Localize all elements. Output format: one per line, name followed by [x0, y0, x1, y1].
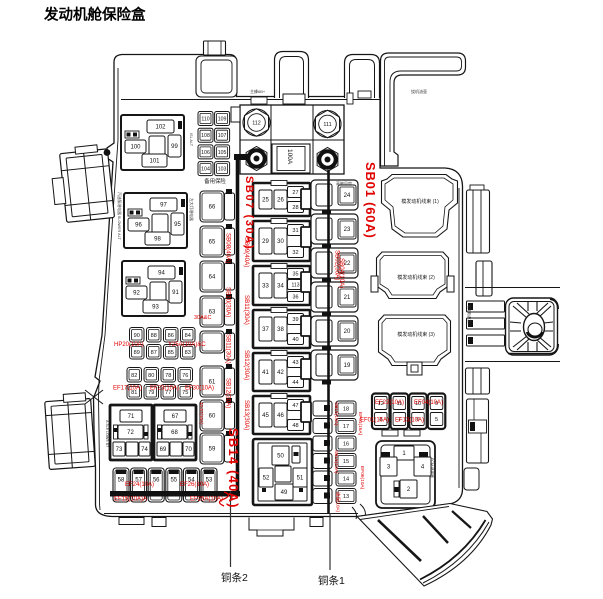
- svg-text:36: 36: [293, 294, 299, 300]
- svg-text:109: 109: [218, 116, 227, 122]
- svg-text:80: 80: [148, 373, 154, 379]
- svg-text:EF01(16A): EF01(16A): [360, 418, 389, 424]
- svg-text:74: 74: [141, 447, 148, 453]
- svg-text:51: 51: [297, 476, 304, 482]
- svg-text:47: 47: [292, 403, 298, 409]
- svg-text:110: 110: [201, 116, 209, 122]
- svg-text:26: 26: [277, 198, 284, 204]
- svg-text:107: 107: [218, 133, 227, 139]
- svg-text:37: 37: [262, 327, 269, 333]
- svg-text:86: 86: [168, 333, 174, 339]
- svg-text:38: 38: [277, 327, 284, 333]
- svg-text:65: 65: [209, 240, 216, 246]
- svg-text:50: 50: [277, 454, 284, 460]
- svg-text:88: 88: [151, 333, 157, 339]
- svg-text:60: 60: [209, 414, 216, 420]
- svg-text:91: 91: [172, 290, 179, 296]
- svg-text:绕机油壶: 绕机油壶: [411, 88, 427, 94]
- svg-text:76: 76: [182, 373, 188, 379]
- svg-text:HP20(10A): HP20(10A): [114, 342, 144, 348]
- svg-text:73: 73: [116, 447, 123, 453]
- svg-text:39: 39: [292, 317, 298, 323]
- svg-text:EF17(10A): EF17(10A): [113, 386, 142, 392]
- svg-text:43-57(15A): 43-57(15A): [199, 402, 204, 425]
- svg-text:EF15(10A)A: EF15(10A)A: [114, 497, 147, 503]
- svg-text:EF01(16A): EF01(16A): [357, 412, 363, 436]
- svg-text:铜条2: 铜条2: [221, 571, 248, 584]
- svg-text:35: 35: [293, 271, 299, 277]
- svg-text:EF22(10A): EF22(10A): [375, 400, 404, 406]
- svg-text:模发动机线束 (3): 模发动机线束 (3): [397, 331, 435, 338]
- svg-text:19: 19: [344, 363, 351, 369]
- svg-text:高被风扇: 高被风扇: [336, 180, 352, 186]
- svg-text:104: 104: [201, 166, 210, 172]
- svg-text:发动机舱保险盒: 发动机舱保险盒: [43, 6, 146, 24]
- svg-text:112: 112: [252, 121, 261, 127]
- svg-text:83: 83: [185, 350, 191, 356]
- svg-text:ECM 继电器: ECM 继电器: [430, 458, 435, 478]
- svg-text:EF25A(10A): EF25A(10A): [190, 497, 223, 503]
- svg-text:103: 103: [218, 166, 227, 172]
- svg-text:SB04(10A): SB04(10A): [338, 258, 345, 288]
- svg-text:71: 71: [128, 414, 135, 420]
- svg-text:111: 111: [323, 122, 331, 128]
- svg-text:A 3L8 LOW3 B7: A 3L8 LOW3 B7: [105, 420, 109, 447]
- svg-text:82: 82: [131, 373, 137, 379]
- svg-text:34: 34: [277, 284, 284, 290]
- svg-text:备用保险: 备用保险: [204, 177, 226, 185]
- svg-text:EF30(10A): EF30(10A): [185, 386, 214, 392]
- svg-text:30A&C: 30A&C: [194, 315, 211, 321]
- svg-text:SB11(30A): SB11(30A): [243, 295, 250, 325]
- svg-text:41: 41: [262, 370, 269, 376]
- svg-text:43: 43: [292, 360, 298, 366]
- svg-text:5: 5: [435, 417, 438, 423]
- svg-text:取用电源接口: 取用电源接口: [467, 305, 472, 327]
- svg-text:102: 102: [155, 125, 166, 131]
- svg-text:模发动机线束 (2): 模发动机线束 (2): [397, 274, 435, 281]
- svg-text:40: 40: [292, 337, 298, 343]
- svg-text:64: 64: [209, 275, 216, 281]
- svg-text:55: 55: [170, 478, 177, 484]
- svg-text:25: 25: [262, 198, 269, 204]
- svg-text:93: 93: [152, 305, 159, 311]
- svg-text:85: 85: [168, 350, 174, 356]
- svg-text:78: 78: [165, 373, 171, 379]
- svg-text:EF24(10A): EF24(10A): [125, 482, 154, 488]
- svg-text:98: 98: [154, 237, 161, 243]
- svg-text:Y25A(10A)&C: Y25A(10A)&C: [168, 342, 206, 348]
- svg-text:96: 96: [135, 223, 142, 229]
- svg-text:SB12(30A): SB12(30A): [225, 378, 232, 408]
- svg-text:99: 99: [171, 144, 178, 150]
- svg-text:69: 69: [160, 447, 167, 453]
- svg-text:SB11(30A): SB11(30A): [225, 334, 232, 364]
- svg-text:16: 16: [343, 442, 349, 448]
- svg-text:27: 27: [292, 190, 298, 196]
- svg-text:45: 45: [262, 413, 269, 419]
- svg-text:模发动机线束 (1): 模发动机线束 (1): [401, 198, 439, 205]
- svg-text:48: 48: [292, 423, 298, 429]
- svg-text:100A: 100A: [286, 149, 293, 165]
- svg-text:17: 17: [343, 424, 349, 430]
- svg-text:95: 95: [174, 222, 181, 228]
- svg-text:101: 101: [149, 159, 160, 165]
- svg-text:58: 58: [118, 478, 125, 484]
- svg-text:100: 100: [130, 145, 141, 151]
- svg-text:EF26(10A): EF26(10A): [180, 482, 209, 488]
- svg-text:31: 31: [292, 228, 298, 234]
- svg-text:44: 44: [292, 380, 298, 386]
- svg-text:89: 89: [134, 350, 140, 356]
- svg-text:90: 90: [134, 333, 140, 339]
- svg-text:汽油泵继电器 BLOWER ALT: 汽油泵继电器 BLOWER ALT: [117, 192, 122, 240]
- svg-text:42: 42: [277, 370, 284, 376]
- svg-text:24: 24: [344, 193, 351, 199]
- svg-text:SB01 (60A): SB01 (60A): [363, 162, 378, 239]
- svg-text:13: 13: [343, 494, 349, 500]
- svg-text:67: 67: [172, 414, 179, 420]
- svg-text:左大灯继电器: 左大灯继电器: [189, 198, 194, 221]
- svg-text:33: 33: [262, 284, 269, 290]
- svg-text:SB15(10A): SB15(10A): [333, 402, 339, 426]
- svg-text:29: 29: [262, 239, 269, 245]
- svg-text:105: 105: [218, 150, 227, 156]
- svg-text:46: 46: [277, 413, 284, 419]
- svg-text:84: 84: [185, 333, 191, 339]
- svg-text:18: 18: [343, 407, 349, 413]
- svg-text:ISL ALT: ISL ALT: [189, 133, 193, 147]
- svg-text:87: 87: [151, 350, 157, 356]
- svg-text:15: 15: [343, 459, 349, 465]
- svg-text:EF04(10A): EF04(10A): [414, 400, 443, 406]
- svg-text:28: 28: [292, 205, 298, 211]
- svg-text:30: 30: [277, 239, 284, 245]
- svg-text:EF23(10A): EF23(10A): [150, 386, 179, 392]
- svg-text:59: 59: [209, 447, 216, 453]
- svg-text:97: 97: [160, 203, 167, 209]
- svg-text:SB09(40A): SB09(40A): [243, 237, 250, 267]
- svg-text:72: 72: [127, 430, 134, 436]
- svg-text:108: 108: [201, 133, 210, 139]
- svg-text:32: 32: [292, 250, 298, 256]
- svg-text:SB10(30A): SB10(30A): [225, 287, 232, 317]
- svg-text:66: 66: [209, 205, 216, 211]
- svg-text:EF13(10A): EF13(10A): [395, 418, 424, 424]
- svg-text:SB13(30A): SB13(30A): [243, 400, 250, 430]
- svg-text:23: 23: [344, 227, 351, 233]
- svg-text:92: 92: [133, 291, 140, 297]
- svg-text:94: 94: [158, 271, 165, 277]
- svg-text:EF06(10A): EF06(10A): [359, 466, 365, 490]
- svg-text:70: 70: [185, 447, 192, 453]
- svg-text:铜条1: 铜条1: [318, 574, 345, 587]
- svg-text:49: 49: [281, 490, 288, 496]
- svg-text:68: 68: [171, 430, 178, 436]
- svg-text:SB08(40A): SB08(40A): [225, 233, 232, 263]
- svg-text:20: 20: [344, 329, 351, 335]
- svg-text:SB16(10A): SB16(10A): [333, 450, 339, 474]
- svg-text:14: 14: [343, 477, 349, 483]
- svg-text:21: 21: [344, 295, 351, 301]
- svg-text:主蜂6B+: 主蜂6B+: [250, 88, 266, 94]
- svg-text:106: 106: [201, 150, 210, 156]
- svg-text:连保(10A): 连保(10A): [335, 492, 342, 513]
- svg-text:SB12(30A): SB12(30A): [243, 350, 250, 380]
- svg-text:52: 52: [263, 476, 270, 482]
- svg-text:113: 113: [292, 282, 300, 288]
